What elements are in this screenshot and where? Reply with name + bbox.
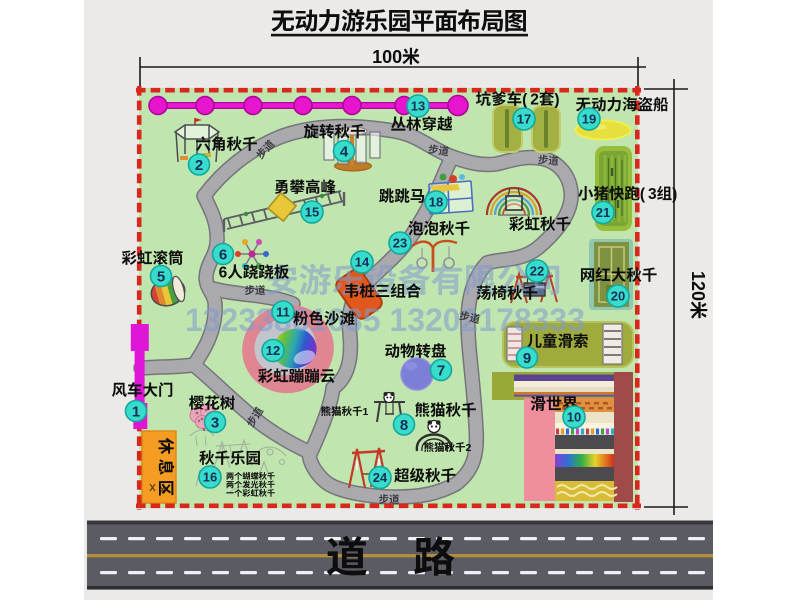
svg-text:3: 3 [211, 414, 219, 431]
svg-text:5: 5 [157, 268, 165, 285]
svg-text:6: 6 [219, 265, 228, 282]
svg-text:): ) [672, 186, 677, 203]
svg-text:10: 10 [567, 410, 581, 425]
svg-text:14: 14 [355, 255, 370, 270]
svg-text:(3: (3 [640, 186, 657, 203]
svg-text:1: 1 [363, 406, 369, 418]
svg-text:13: 13 [411, 99, 425, 114]
svg-text:100: 100 [372, 47, 402, 67]
svg-text:12: 12 [266, 343, 280, 358]
svg-text:2: 2 [466, 442, 472, 454]
svg-text:7: 7 [437, 362, 445, 379]
svg-text:): ) [554, 92, 559, 109]
svg-text:19: 19 [582, 112, 596, 127]
svg-text:20: 20 [611, 289, 625, 304]
svg-text:21: 21 [596, 205, 610, 220]
svg-text:(2: (2 [522, 92, 539, 109]
svg-text:24: 24 [373, 470, 388, 485]
svg-text:22: 22 [530, 264, 544, 279]
svg-text:8: 8 [400, 417, 408, 434]
svg-text:9: 9 [523, 350, 531, 367]
svg-text:120: 120 [688, 271, 708, 301]
svg-text:4: 4 [340, 143, 349, 160]
svg-text:11: 11 [276, 305, 290, 320]
svg-text:1: 1 [132, 403, 140, 420]
svg-text:6: 6 [219, 246, 227, 263]
svg-text:15: 15 [305, 205, 319, 220]
svg-text:2: 2 [195, 157, 203, 174]
svg-text:16: 16 [203, 470, 217, 485]
svg-text:17: 17 [517, 112, 531, 127]
svg-text:13233861635 13202178333: 13233861635 13202178333 [185, 302, 585, 338]
svg-text:23: 23 [393, 236, 407, 251]
svg-text:18: 18 [429, 195, 443, 210]
